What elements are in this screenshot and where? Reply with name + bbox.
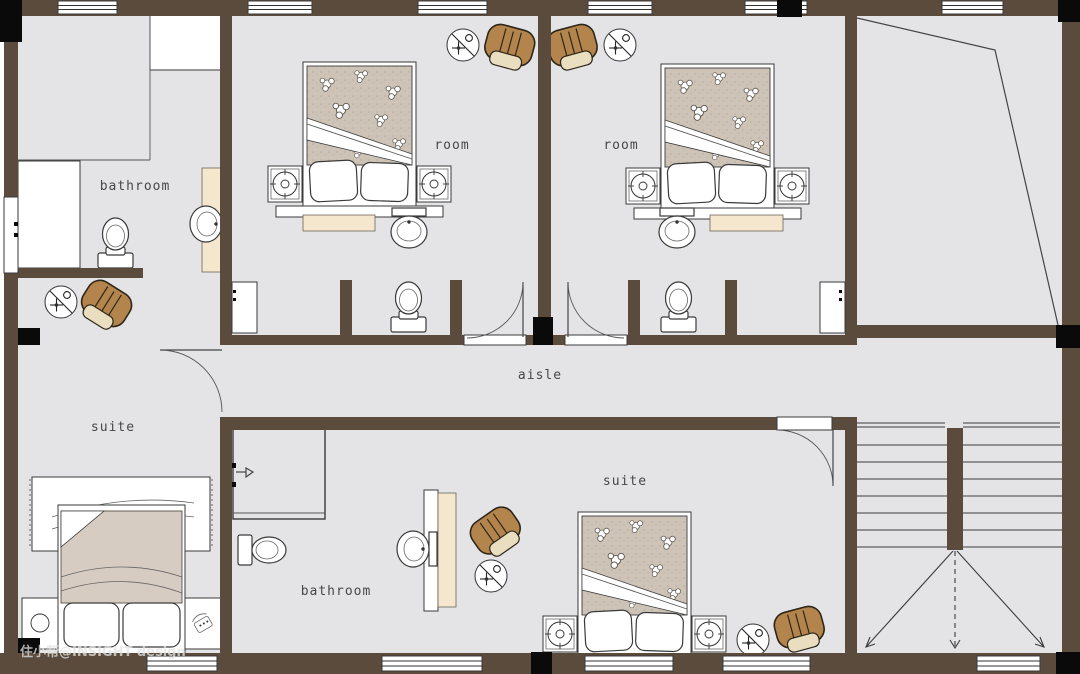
window — [977, 656, 1040, 671]
watermark: 住小帮@INSIGHT design — [20, 644, 186, 660]
vanity-counter — [438, 493, 456, 607]
label-aisle: aisle — [518, 368, 562, 383]
label-suite-bottom: suite — [603, 474, 647, 489]
bench — [303, 215, 375, 231]
pillow — [64, 603, 119, 647]
door-leaf — [232, 282, 257, 333]
window — [382, 656, 482, 671]
closet-cabinet — [150, 14, 222, 70]
label-suite-left: suite — [91, 420, 135, 435]
window — [58, 1, 117, 14]
wash-basin-icon — [659, 208, 695, 248]
bench — [710, 215, 783, 231]
label-bathroom-bottom: bathroom — [301, 584, 372, 599]
ceiling-fan-icon — [447, 29, 479, 61]
door-threshold — [565, 335, 627, 345]
window — [418, 1, 487, 14]
pillow — [123, 603, 180, 647]
wash-basin-icon — [397, 531, 437, 567]
window — [942, 1, 1003, 14]
window — [723, 656, 810, 671]
label-bathroom-top: bathroom — [100, 179, 171, 194]
window — [588, 1, 652, 14]
ceiling-fan-icon — [475, 560, 507, 592]
label-room-1: room — [434, 138, 469, 153]
door-threshold — [777, 417, 832, 430]
closet-area — [18, 161, 80, 268]
ceiling-fan-icon — [737, 624, 769, 656]
door-leaf — [820, 282, 845, 333]
ceiling-fan-icon — [604, 29, 636, 61]
floor-plan: bathroom room room suite aisle suite bat… — [0, 0, 1080, 674]
door-threshold — [464, 335, 526, 345]
nightstand — [185, 598, 221, 649]
label-room-2: room — [603, 138, 638, 153]
wash-basin-icon — [391, 208, 427, 248]
toilet-icon — [238, 535, 286, 565]
window — [248, 1, 312, 14]
ceiling-fan-icon — [45, 286, 77, 318]
window — [585, 656, 673, 671]
